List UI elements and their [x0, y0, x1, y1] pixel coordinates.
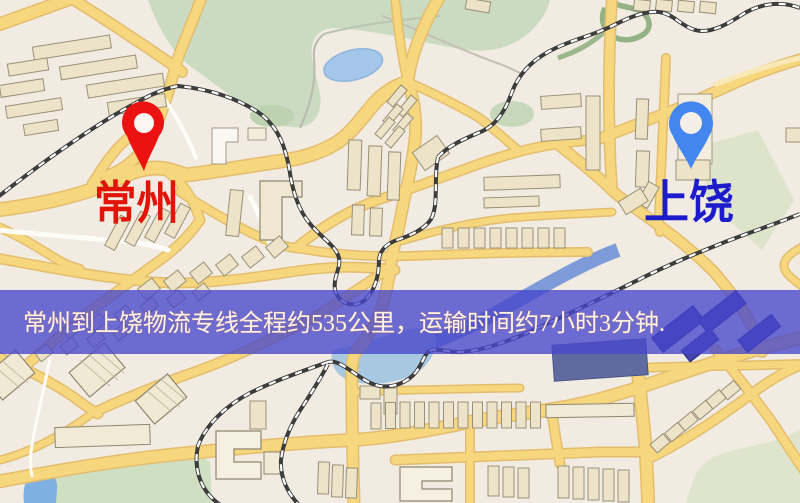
svg-text:常州到上饶物流专线全程约535公里，运输时间约7小时3分钟.: 常州到上饶物流专线全程约535公里，运输时间约7小时3分钟. — [23, 310, 665, 337]
svg-text:上饶: 上饶 — [644, 177, 734, 229]
svg-text:常州: 常州 — [94, 178, 179, 229]
